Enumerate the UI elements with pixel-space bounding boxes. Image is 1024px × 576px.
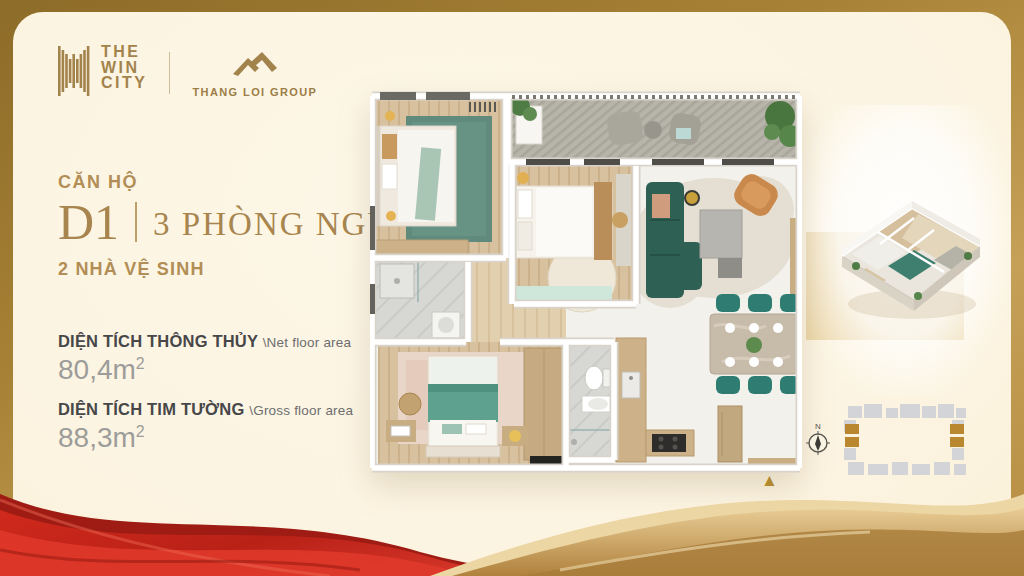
unit-bedrooms-label: 3 PHÒNG NGỦ xyxy=(153,204,393,241)
net-area-value: 80,4m2 xyxy=(58,354,353,386)
win-city-bars-icon xyxy=(58,44,92,98)
gross-area-label-vi: DIỆN TÍCH TIM TƯỜNG xyxy=(58,400,244,418)
gross-area-label: DIỆN TÍCH TIM TƯỜNG \Gross floor area xyxy=(58,400,353,419)
logo-divider xyxy=(169,52,170,94)
compass: N xyxy=(806,422,830,455)
the-win-city-logo: THE WIN CITY xyxy=(58,44,147,98)
site-buildings xyxy=(844,404,966,475)
header-logos: THE WIN CITY THANG LOI GROUP xyxy=(58,44,317,98)
unit-code: D1 xyxy=(58,197,119,247)
unit-headline: CĂN HỘ D1 3 PHÒNG NGỦ 2 NHÀ VỆ SINH xyxy=(58,172,393,280)
unit-bathrooms-label: 2 NHÀ VỆ SINH xyxy=(58,259,393,280)
wordmark-line: THE xyxy=(101,44,147,60)
gross-area-value: 88,3m2 xyxy=(58,422,353,454)
corridor xyxy=(468,304,566,342)
iso-3d-view xyxy=(822,168,997,340)
slide-frame: { "brand": { "the_win_city": { "lines": … xyxy=(0,0,1024,576)
win-city-wordmark: THE WIN CITY xyxy=(101,44,147,91)
unit-code-row: D1 3 PHÒNG NGỦ xyxy=(58,197,393,247)
unit-separator xyxy=(135,202,137,242)
compass-north-label: N xyxy=(815,422,821,431)
floor-plan xyxy=(370,90,802,490)
wordmark-line: CITY xyxy=(101,75,147,91)
thang-loi-group-logo: THANG LOI GROUP xyxy=(192,50,317,98)
gross-area-line: DIỆN TÍCH TIM TƯỜNG \Gross floor area 88… xyxy=(58,400,353,454)
gold-wave xyxy=(430,494,1024,576)
net-area-label-vi: DIỆN TÍCH THÔNG THỦY xyxy=(58,332,258,350)
unit-category-label: CĂN HỘ xyxy=(58,172,393,193)
decorative-waves xyxy=(0,466,1024,576)
gross-area-label-en: \Gross floor area xyxy=(249,403,353,418)
area-info: DIỆN TÍCH THÔNG THỦY \Net floor area 80,… xyxy=(58,332,353,468)
dining-items xyxy=(710,294,800,394)
thang-loi-chevron-icon xyxy=(229,50,281,80)
net-area-label-en: \Net floor area xyxy=(263,335,352,350)
thang-loi-wordmark: THANG LOI GROUP xyxy=(192,86,317,98)
highlighted-units xyxy=(845,424,964,447)
wordmark-line: WIN xyxy=(101,60,147,76)
net-area-line: DIỆN TÍCH THÔNG THỦY \Net floor area 80,… xyxy=(58,332,353,386)
net-area-label: DIỆN TÍCH THÔNG THỦY \Net floor area xyxy=(58,332,353,351)
